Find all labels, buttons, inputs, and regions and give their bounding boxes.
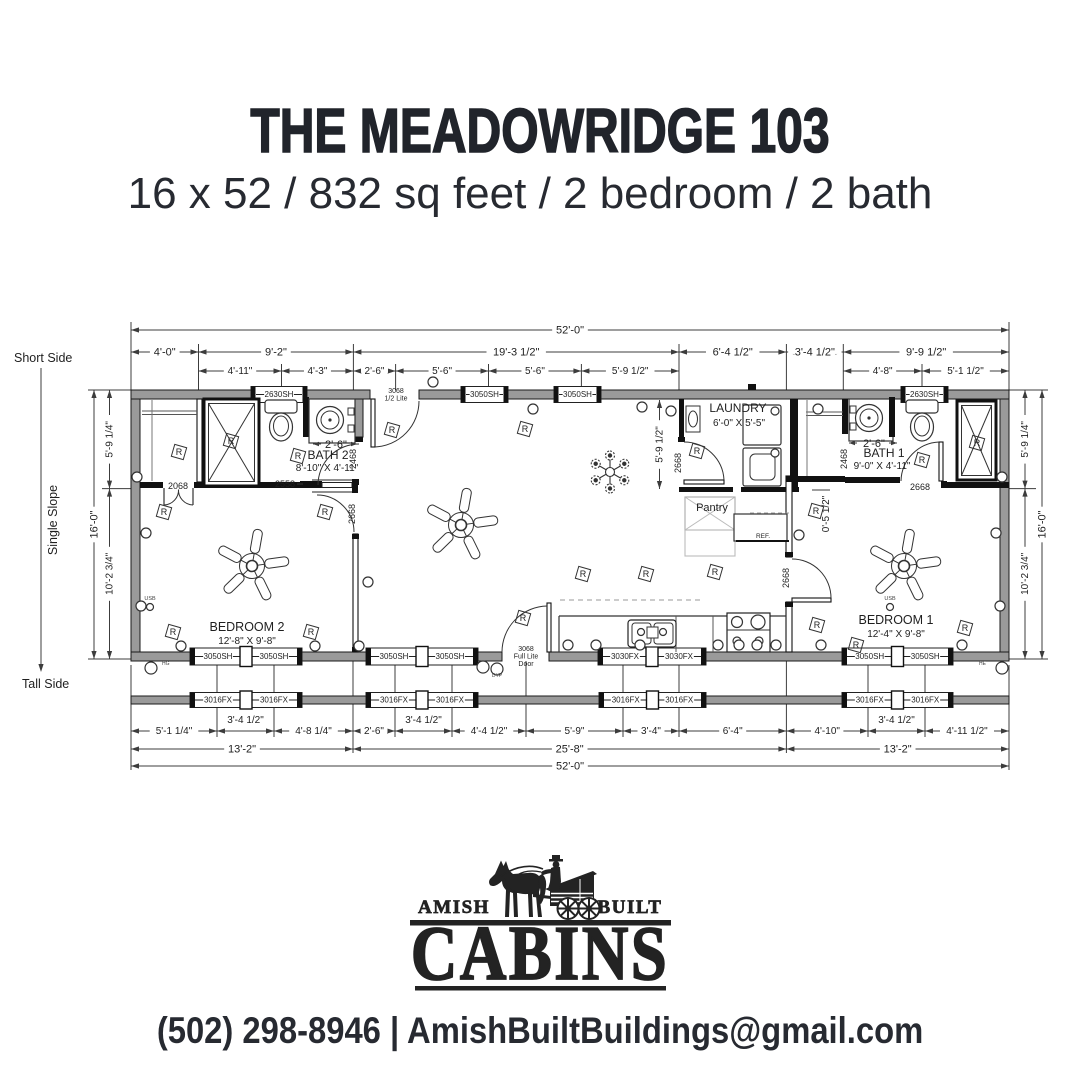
svg-text:R: R: [712, 567, 719, 577]
svg-text:6'-4 1/2": 6'-4 1/2": [713, 347, 753, 359]
svg-text:10'-2 3/4": 10'-2 3/4": [1020, 552, 1031, 595]
svg-text:2068: 2068: [168, 481, 188, 491]
svg-text:5'-9 1/4": 5'-9 1/4": [105, 421, 116, 458]
svg-text:13'-2": 13'-2": [228, 744, 256, 756]
svg-text:R: R: [170, 627, 177, 637]
svg-text:5'-9 1/2": 5'-9 1/2": [655, 426, 666, 463]
svg-text:2668: 2668: [673, 453, 683, 473]
svg-text:4'-10": 4'-10": [814, 726, 840, 737]
svg-text:12'-4" X 9'-8": 12'-4" X 9'-8": [867, 629, 925, 640]
svg-text:52'-0": 52'-0": [556, 325, 584, 337]
svg-text:3016FX: 3016FX: [380, 696, 409, 705]
svg-text:25'-8": 25'-8": [556, 744, 584, 756]
svg-text:Door: Door: [518, 661, 534, 668]
svg-text:3016FX: 3016FX: [260, 696, 289, 705]
svg-text:3'-4 1/2": 3'-4 1/2": [878, 715, 915, 726]
svg-text:3'-4 1/2": 3'-4 1/2": [405, 715, 442, 726]
svg-text:R: R: [522, 424, 529, 434]
svg-text:(502) 298-8946 | AmishBuiltBui: (502) 298-8946 | AmishBuiltBuildings@gma…: [157, 1010, 923, 1051]
svg-text:5'-9": 5'-9": [565, 726, 585, 737]
svg-text:R: R: [520, 613, 527, 623]
svg-text:Short Side: Short Side: [14, 351, 72, 365]
svg-text:R: R: [308, 627, 315, 637]
svg-text:THE MEADOWRIDGE 103: THE MEADOWRIDGE 103: [250, 96, 829, 165]
svg-text:R: R: [389, 425, 396, 435]
svg-text:HG: HG: [162, 661, 170, 667]
svg-text:2'-6": 2'-6": [364, 726, 384, 737]
svg-text:13'-2": 13'-2": [884, 744, 912, 756]
svg-text:Single Slope: Single Slope: [46, 485, 60, 555]
svg-text:3030FX: 3030FX: [611, 652, 640, 661]
svg-text:DYP: DYP: [492, 673, 503, 679]
svg-text:R: R: [962, 623, 969, 633]
svg-text:3050SH: 3050SH: [204, 652, 233, 661]
svg-text:10'-2 3/4": 10'-2 3/4": [105, 552, 116, 595]
svg-text:5'-6": 5'-6": [432, 366, 452, 377]
svg-text:R: R: [295, 451, 302, 461]
svg-text:3'-4 1/2": 3'-4 1/2": [227, 715, 264, 726]
svg-text:4'-8": 4'-8": [873, 366, 893, 377]
svg-text:2668: 2668: [347, 504, 357, 524]
svg-text:6'-4": 6'-4": [723, 726, 743, 737]
svg-text:Pantry: Pantry: [696, 502, 728, 514]
svg-text:3016FX: 3016FX: [204, 696, 233, 705]
svg-text:USB: USB: [884, 596, 896, 602]
svg-text:2668: 2668: [910, 482, 930, 492]
svg-text:3016FX: 3016FX: [612, 696, 641, 705]
svg-text:3050SH: 3050SH: [380, 652, 409, 661]
svg-text:16'-0": 16'-0": [1037, 510, 1049, 538]
svg-text:3068: 3068: [518, 646, 534, 653]
svg-text:3050SH: 3050SH: [260, 652, 289, 661]
svg-text:16 x 52 / 832 sq feet / 2 bedr: 16 x 52 / 832 sq feet / 2 bedroom / 2 ba…: [128, 169, 933, 218]
svg-text:19'-3 1/2": 19'-3 1/2": [493, 347, 539, 359]
svg-text:3068: 3068: [388, 388, 404, 395]
svg-text:R: R: [228, 436, 235, 446]
svg-text:9'-0" X 4'-11": 9'-0" X 4'-11": [854, 461, 911, 472]
svg-text:R: R: [643, 569, 650, 579]
svg-text:4'-0": 4'-0": [154, 347, 176, 359]
svg-text:R: R: [814, 620, 821, 630]
svg-text:R: R: [161, 507, 168, 517]
svg-text:3016FX: 3016FX: [665, 696, 694, 705]
svg-text:R: R: [853, 640, 860, 650]
svg-text:CABINS: CABINS: [411, 912, 669, 997]
svg-text:2468: 2468: [839, 449, 849, 469]
svg-text:3'-4 1/2": 3'-4 1/2": [795, 347, 835, 359]
svg-text:12'-8" X 9'-8": 12'-8" X 9'-8": [218, 636, 276, 647]
svg-text:R: R: [580, 569, 587, 579]
svg-text:3050SH: 3050SH: [470, 390, 499, 399]
svg-text:6'-0" X 5'-5": 6'-0" X 5'-5": [713, 418, 766, 429]
svg-text:BEDROOM 2: BEDROOM 2: [209, 620, 284, 634]
svg-text:3016FX: 3016FX: [911, 696, 940, 705]
svg-text:LAUNDRY: LAUNDRY: [709, 401, 766, 415]
svg-text:3030FX: 3030FX: [665, 652, 694, 661]
svg-text:R: R: [694, 446, 701, 456]
svg-text:REF.: REF.: [756, 533, 770, 540]
svg-text:USB: USB: [144, 596, 156, 602]
svg-text:BATH 2: BATH 2: [307, 448, 348, 462]
svg-text:HE: HE: [979, 661, 987, 667]
svg-text:9'-9 1/2": 9'-9 1/2": [906, 347, 946, 359]
svg-text:9'-2": 9'-2": [265, 347, 287, 359]
svg-text:R: R: [974, 438, 981, 448]
svg-text:52'-0": 52'-0": [556, 761, 584, 773]
svg-text:5'-9 1/2": 5'-9 1/2": [612, 366, 649, 377]
svg-text:4'-3": 4'-3": [307, 366, 327, 377]
svg-text:3050SH: 3050SH: [436, 652, 465, 661]
svg-text:5'-1 1/4": 5'-1 1/4": [156, 726, 193, 737]
svg-text:1/2 Lite: 1/2 Lite: [385, 396, 408, 403]
svg-text:BATH 1: BATH 1: [863, 446, 904, 460]
svg-text:0'-5 1/2": 0'-5 1/2": [821, 495, 832, 532]
svg-text:R: R: [322, 507, 329, 517]
svg-text:3050SH: 3050SH: [911, 652, 940, 661]
svg-text:5'-6": 5'-6": [525, 366, 545, 377]
svg-text:R: R: [919, 455, 926, 465]
svg-text:4'-8 1/4": 4'-8 1/4": [295, 726, 332, 737]
svg-text:3'-4": 3'-4": [641, 726, 661, 737]
svg-text:2558: 2558: [275, 479, 295, 489]
svg-text:5'-9 1/4": 5'-9 1/4": [1020, 421, 1031, 458]
svg-text:3050SH: 3050SH: [855, 652, 884, 661]
svg-text:2668: 2668: [781, 568, 791, 588]
svg-text:2630SH: 2630SH: [265, 390, 294, 399]
svg-text:4'-4 1/2": 4'-4 1/2": [471, 726, 508, 737]
svg-text:16'-0": 16'-0": [89, 510, 101, 538]
svg-text:BEDROOM 1: BEDROOM 1: [858, 613, 933, 627]
svg-text:R: R: [176, 447, 183, 457]
svg-text:R: R: [813, 506, 820, 516]
svg-text:2'-6": 2'-6": [365, 366, 385, 377]
svg-text:3016FX: 3016FX: [856, 696, 885, 705]
svg-text:3050SH: 3050SH: [563, 390, 592, 399]
svg-text:2468: 2468: [348, 449, 358, 469]
svg-text:4'-11 1/2": 4'-11 1/2": [946, 726, 988, 737]
svg-text:Full Lite: Full Lite: [514, 654, 539, 661]
svg-text:4'-11": 4'-11": [228, 366, 253, 377]
svg-text:2630SH: 2630SH: [910, 390, 939, 399]
svg-text:3016FX: 3016FX: [436, 696, 465, 705]
svg-text:Tall Side: Tall Side: [22, 677, 69, 691]
svg-text:5'-1 1/2": 5'-1 1/2": [947, 366, 984, 377]
